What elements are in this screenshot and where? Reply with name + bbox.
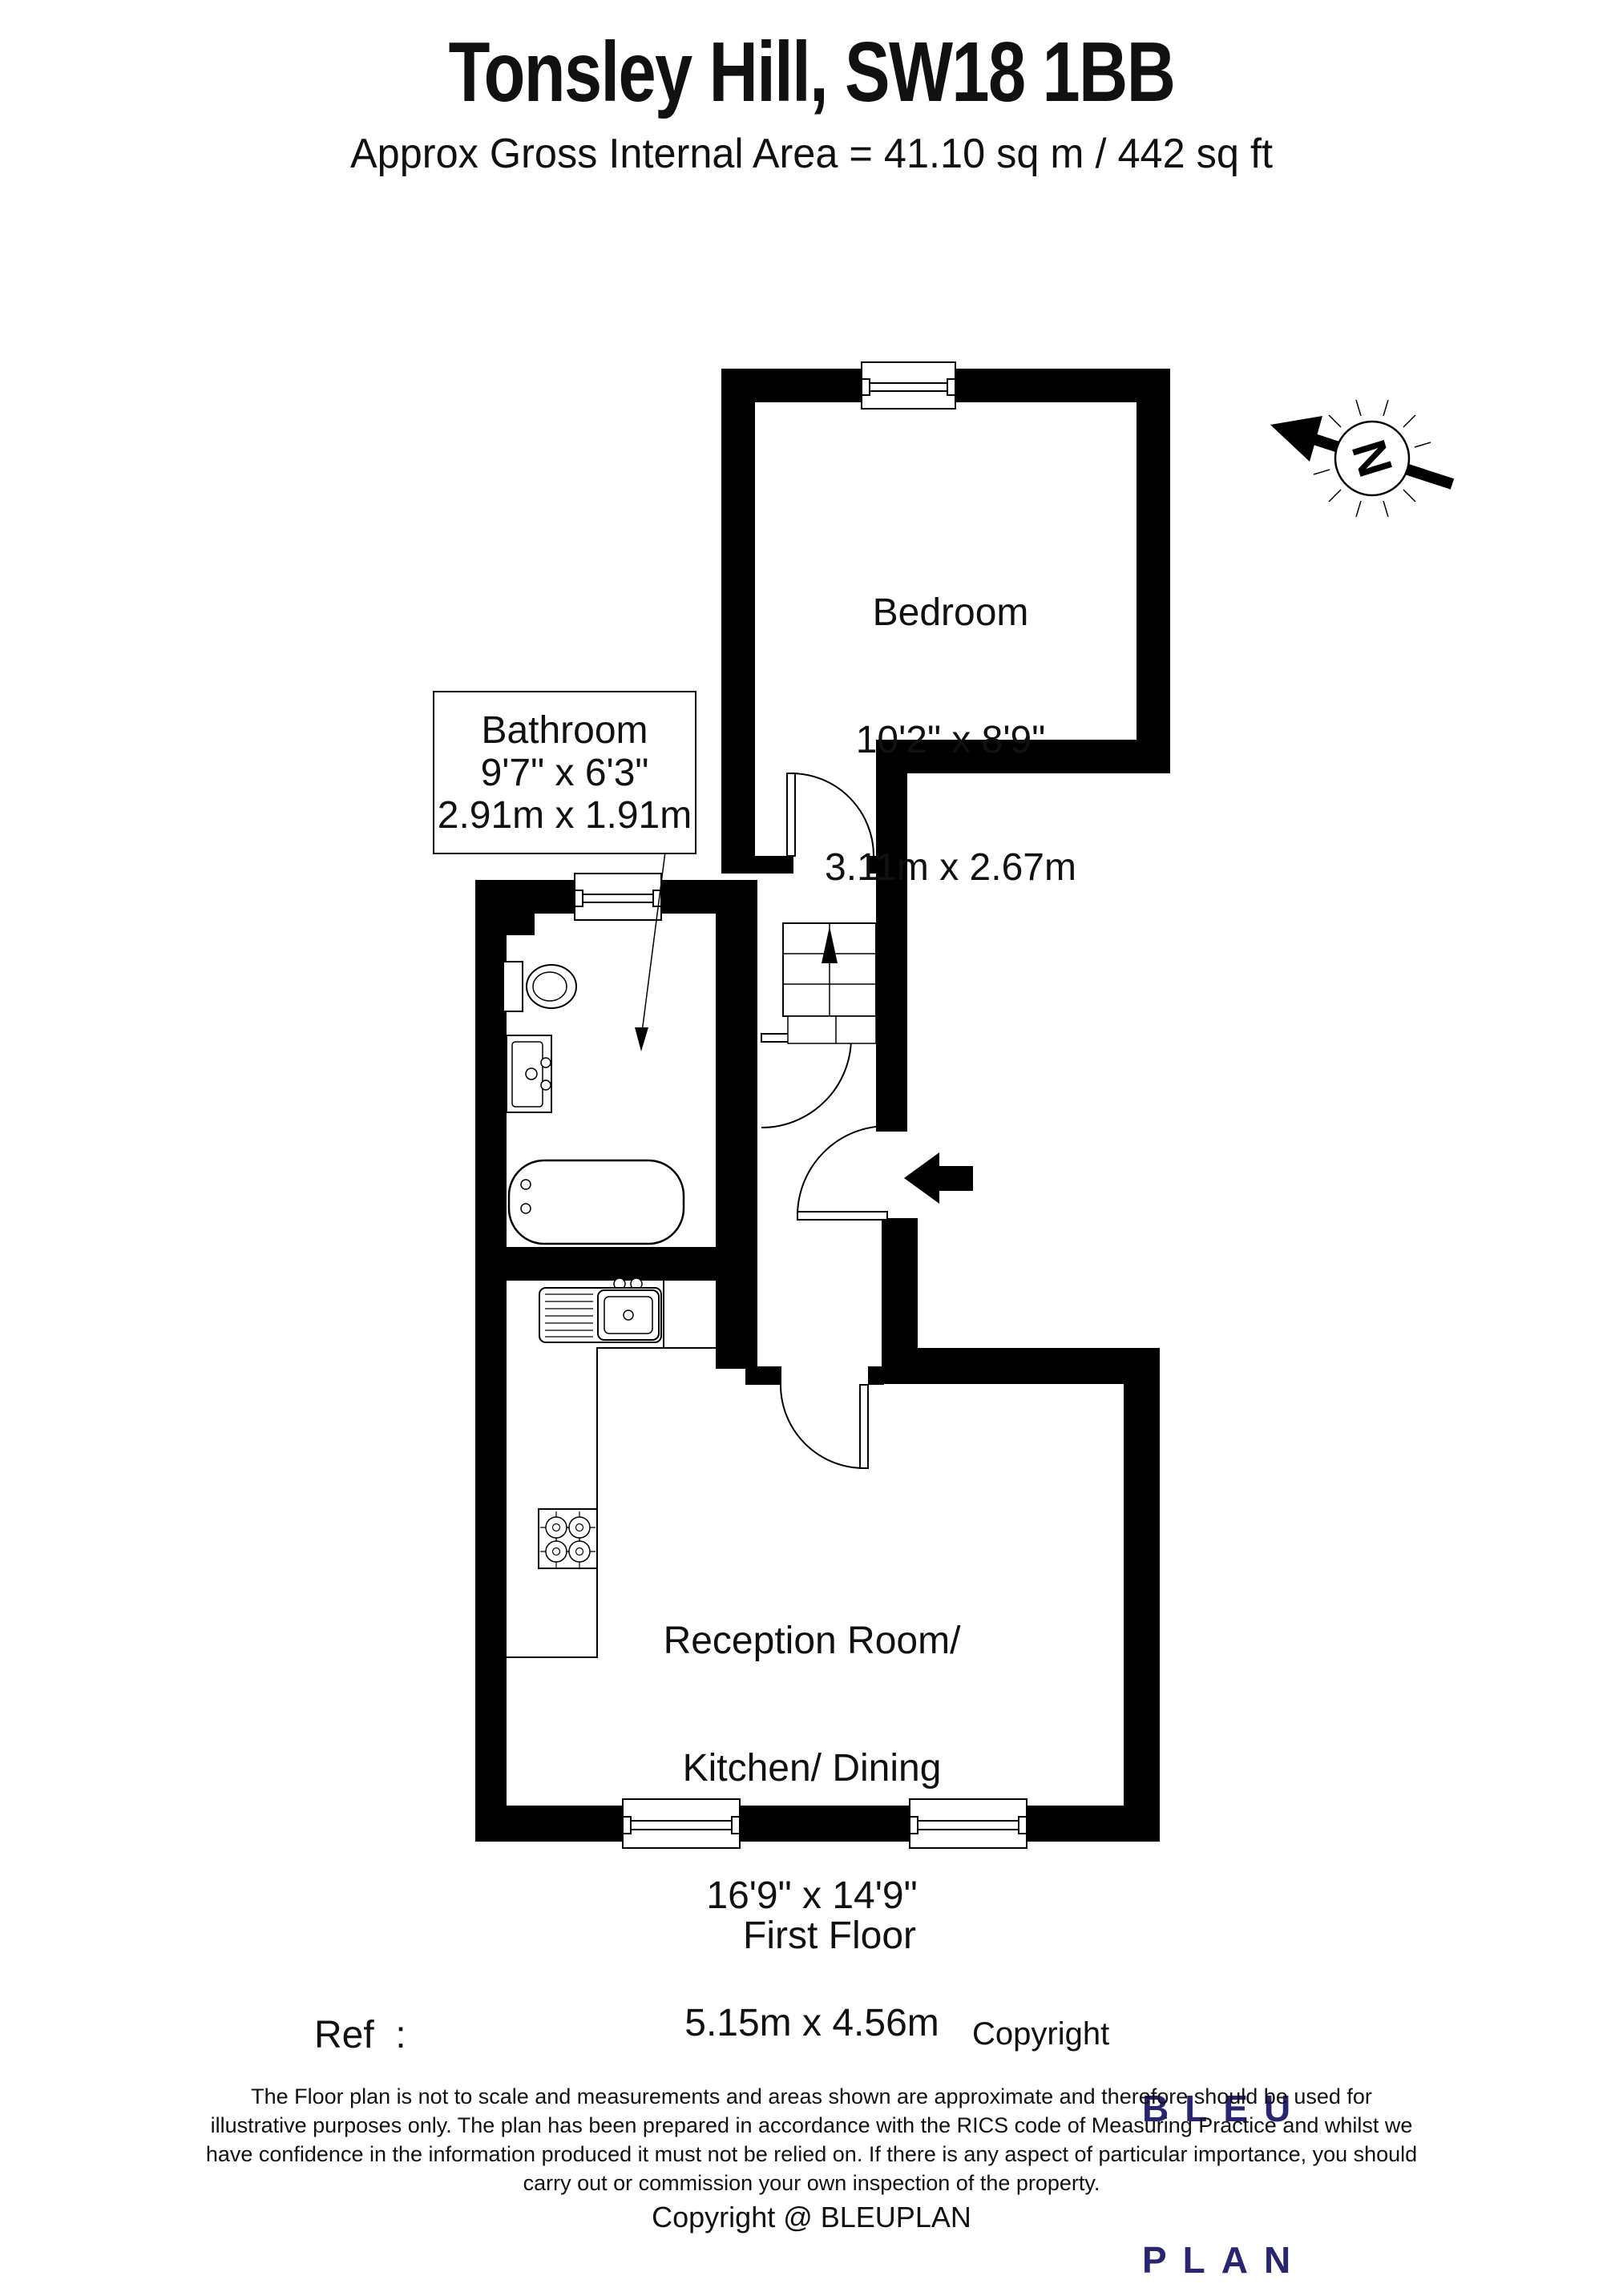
floorplan-page: N Tonsley Hill, SW18 1BB Approx Gross In… bbox=[0, 0, 1623, 2296]
stove-icon bbox=[539, 1509, 597, 1568]
reception-dimensions-imperial: 16'9" x 14'9" bbox=[664, 1874, 961, 1917]
hall-door-swing-icon bbox=[761, 1034, 851, 1128]
disclaimer-line4: carry out or commission your own inspect… bbox=[0, 2169, 1623, 2197]
north-compass-icon: N bbox=[1270, 400, 1452, 517]
page-subtitle: Approx Gross Internal Area = 41.10 sq m … bbox=[24, 130, 1598, 178]
kitchen-sink-icon bbox=[539, 1278, 661, 1342]
disclaimer-line1: The Floor plan is not to scale and measu… bbox=[0, 2082, 1623, 2111]
bedroom-window-icon bbox=[862, 362, 955, 409]
copyright-label: Copyright bbox=[972, 2016, 1109, 2052]
disclaimer-text: The Floor plan is not to scale and measu… bbox=[0, 2082, 1623, 2197]
bathroom-name: Bathroom bbox=[481, 709, 648, 752]
bedroom-name: Bedroom bbox=[825, 591, 1076, 634]
bedroom-label: Bedroom 10'2" x 8'9" 3.11m x 2.67m bbox=[825, 506, 1076, 974]
bathroom-dimensions-imperial: 9'7" x 6'3" bbox=[481, 752, 649, 794]
disclaimer-line3: have confidence in the information produ… bbox=[0, 2140, 1623, 2169]
ref-label: Ref : bbox=[314, 2013, 406, 2057]
floor-label: First Floor bbox=[743, 1914, 916, 1958]
kitchen-door-swing-icon bbox=[781, 1385, 868, 1468]
page-title: Tonsley Hill, SW18 1BB bbox=[163, 24, 1461, 121]
copyright-line: Copyright @ BLEUPLAN bbox=[0, 2201, 1623, 2234]
bedroom-dimensions-imperial: 10'2" x 8'9" bbox=[825, 719, 1076, 761]
bathroom-sink-icon bbox=[507, 1035, 551, 1112]
entrance-arrow-icon bbox=[904, 1152, 973, 1204]
reception-name-line1: Reception Room/ bbox=[664, 1620, 961, 1662]
bedroom-dimensions-metric: 3.11m x 2.67m bbox=[825, 846, 1076, 889]
bathtub-icon bbox=[509, 1160, 684, 1244]
reception-dimensions-metric: 5.15m x 4.56m bbox=[664, 2002, 961, 2044]
bathroom-window-icon bbox=[575, 874, 661, 920]
logo-line2: PLAN bbox=[1142, 2235, 1306, 2286]
reception-label: Reception Room/ Kitchen/ Dining 16'9" x … bbox=[664, 1535, 961, 2129]
toilet-icon bbox=[503, 962, 576, 1011]
bathroom-callout: Bathroom 9'7" x 6'3" 2.91m x 1.91m bbox=[433, 691, 696, 854]
disclaimer-line2: illustrative purposes only. The plan has… bbox=[0, 2111, 1623, 2140]
bathroom-dimensions-metric: 2.91m x 1.91m bbox=[438, 794, 692, 837]
reception-name-line2: Kitchen/ Dining bbox=[664, 1747, 961, 1790]
entry-door-swing-icon bbox=[797, 1126, 887, 1220]
